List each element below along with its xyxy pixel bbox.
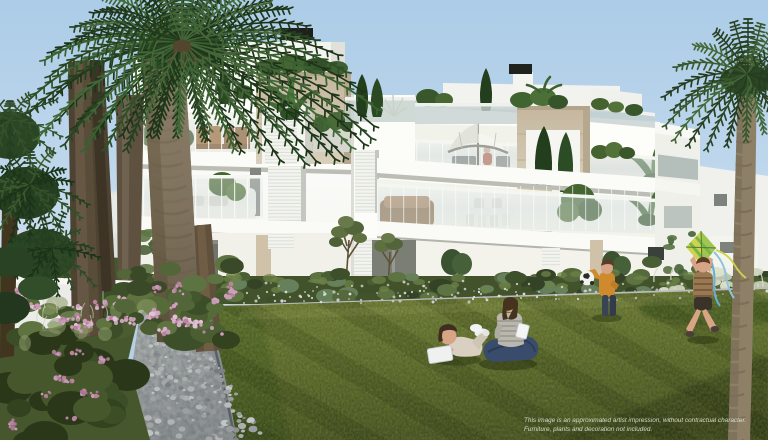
svg-text:Furniture, plants and decorati: Furniture, plants and decoration not inc… — [524, 426, 652, 433]
svg-text:This image is an approximated: This image is an approximated artist imp… — [524, 417, 746, 424]
